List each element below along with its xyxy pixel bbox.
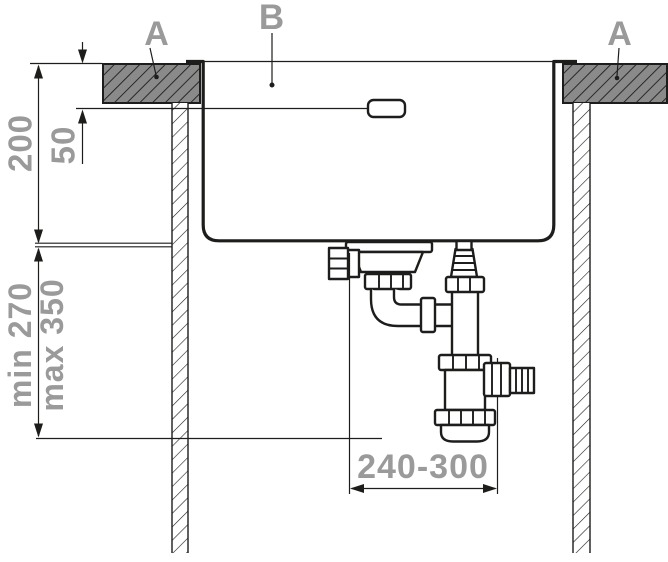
barb-cap xyxy=(457,241,472,250)
trap-body xyxy=(445,370,485,410)
sink-installation-diagram: 200 50 min 270 max 350 240-300 A B A xyxy=(0,0,668,562)
riser-nut xyxy=(446,277,484,292)
trap-bottom-nut xyxy=(435,410,495,425)
callout-b-label: B xyxy=(259,0,285,37)
callout-a-left-label: A xyxy=(144,15,170,53)
dimension-sink-depth: 200 xyxy=(2,65,44,244)
strainer-basket xyxy=(353,252,423,272)
pipe-coupling xyxy=(421,298,435,332)
countertop-right-section xyxy=(563,64,667,103)
riser-pipe xyxy=(452,291,478,357)
overflow-port-cap xyxy=(329,248,348,279)
drain-trap-assembly xyxy=(329,241,534,442)
callout-a-right-label: A xyxy=(607,15,633,53)
dimension-outlet-distance: 240-300 xyxy=(350,448,497,493)
reference-lines xyxy=(30,64,498,495)
callout-b: B xyxy=(259,0,285,88)
trap-cup xyxy=(441,425,489,442)
sink-basin-outline xyxy=(186,62,577,241)
dimension-outlet-distance-label: 240-300 xyxy=(357,448,489,486)
overflow-opening xyxy=(368,100,405,117)
dimension-drain-height: min 270 max 350 xyxy=(2,248,70,438)
cabinet-wall-left xyxy=(172,103,188,553)
countertop-left-section xyxy=(103,64,200,103)
cabinet-wall-right xyxy=(573,103,590,553)
dimension-overflow-offset-label: 50 xyxy=(45,126,82,165)
dimension-drain-max-label: max 350 xyxy=(34,278,70,411)
outlet-coupling xyxy=(484,363,510,396)
strainer-nut xyxy=(365,274,411,289)
dimension-drain-min-label: min 270 xyxy=(2,282,38,408)
dimension-sink-depth-label: 200 xyxy=(2,114,39,172)
diagram-canvas: 200 50 min 270 max 350 240-300 A B A xyxy=(0,0,668,562)
dimension-overflow-offset: 50 xyxy=(45,42,88,164)
